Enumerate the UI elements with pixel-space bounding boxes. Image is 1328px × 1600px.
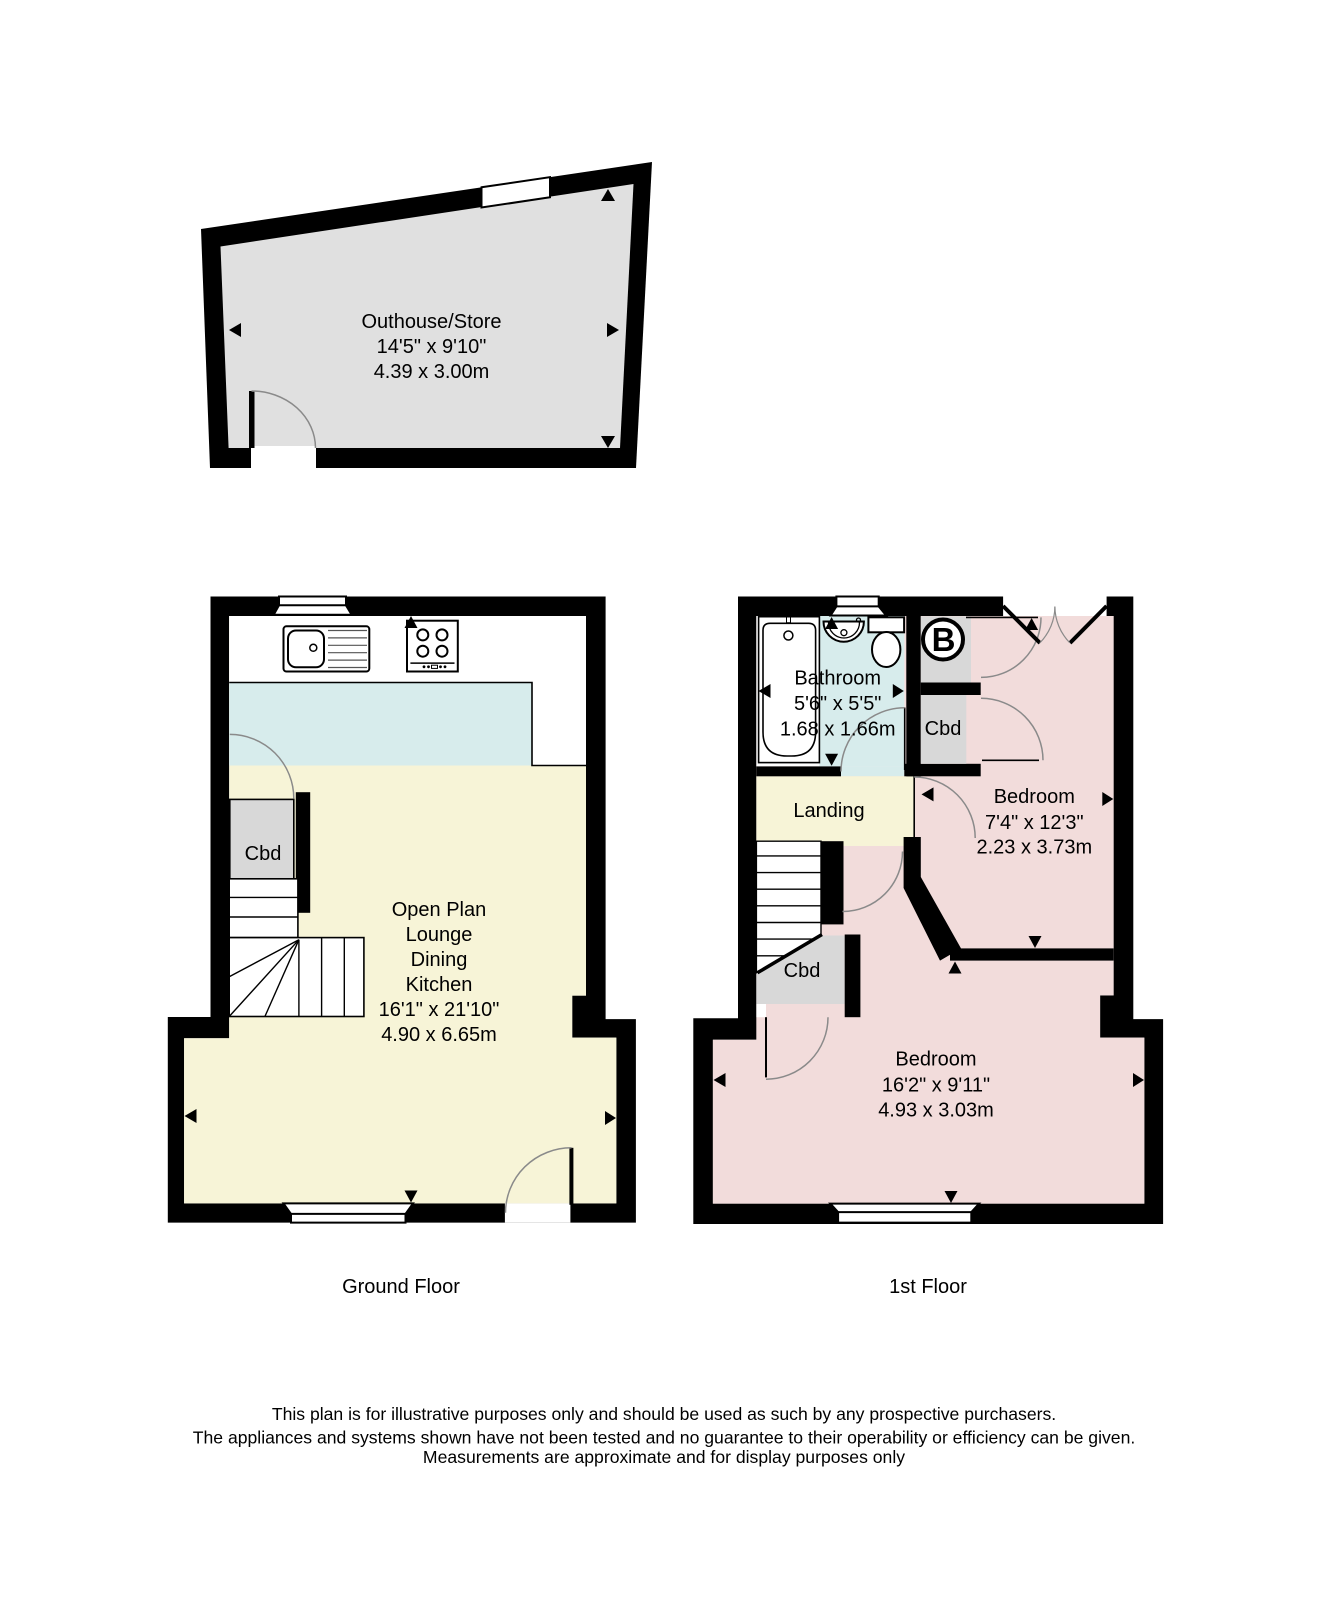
svg-text:Bathroom: Bathroom <box>794 668 881 690</box>
svg-text:Dining: Dining <box>411 949 468 971</box>
svg-text:B: B <box>932 621 956 658</box>
svg-text:Lounge: Lounge <box>406 924 473 946</box>
svg-text:Ground Floor: Ground Floor <box>342 1276 460 1298</box>
svg-text:Bedroom: Bedroom <box>994 786 1075 808</box>
svg-text:4.90 x 6.65m: 4.90 x 6.65m <box>381 1024 497 1046</box>
svg-text:16'1" x 21'10": 16'1" x 21'10" <box>379 999 500 1021</box>
svg-text:Cbd: Cbd <box>245 843 282 865</box>
svg-text:Bedroom: Bedroom <box>895 1049 976 1071</box>
svg-text:Landing: Landing <box>793 800 864 822</box>
svg-text:Measurements are approximate a: Measurements are approximate and for dis… <box>423 1447 905 1467</box>
svg-text:This plan is for illustrative: This plan is for illustrative purposes o… <box>272 1404 1056 1424</box>
svg-text:Outhouse/Store: Outhouse/Store <box>361 311 501 333</box>
svg-text:Cbd: Cbd <box>925 718 962 740</box>
svg-text:The appliances and systems sho: The appliances and systems shown have no… <box>193 1427 1136 1447</box>
svg-text:4.93 x 3.03m: 4.93 x 3.03m <box>878 1100 994 1122</box>
svg-text:2.23 x 3.73m: 2.23 x 3.73m <box>976 837 1092 859</box>
svg-text:1st Floor: 1st Floor <box>889 1276 967 1298</box>
svg-text:Cbd: Cbd <box>784 960 821 982</box>
svg-text:Open Plan: Open Plan <box>392 899 487 921</box>
svg-text:16'2" x 9'11": 16'2" x 9'11" <box>882 1075 990 1097</box>
svg-text:7'4" x 12'3": 7'4" x 12'3" <box>985 812 1084 834</box>
svg-text:14'5" x 9'10": 14'5" x 9'10" <box>377 336 487 358</box>
svg-text:4.39 x 3.00m: 4.39 x 3.00m <box>374 361 490 383</box>
svg-text:Kitchen: Kitchen <box>406 974 473 996</box>
svg-text:5'6" x 5'5": 5'6" x 5'5" <box>794 693 881 715</box>
svg-text:1.68 x 1.66m: 1.68 x 1.66m <box>780 719 896 741</box>
